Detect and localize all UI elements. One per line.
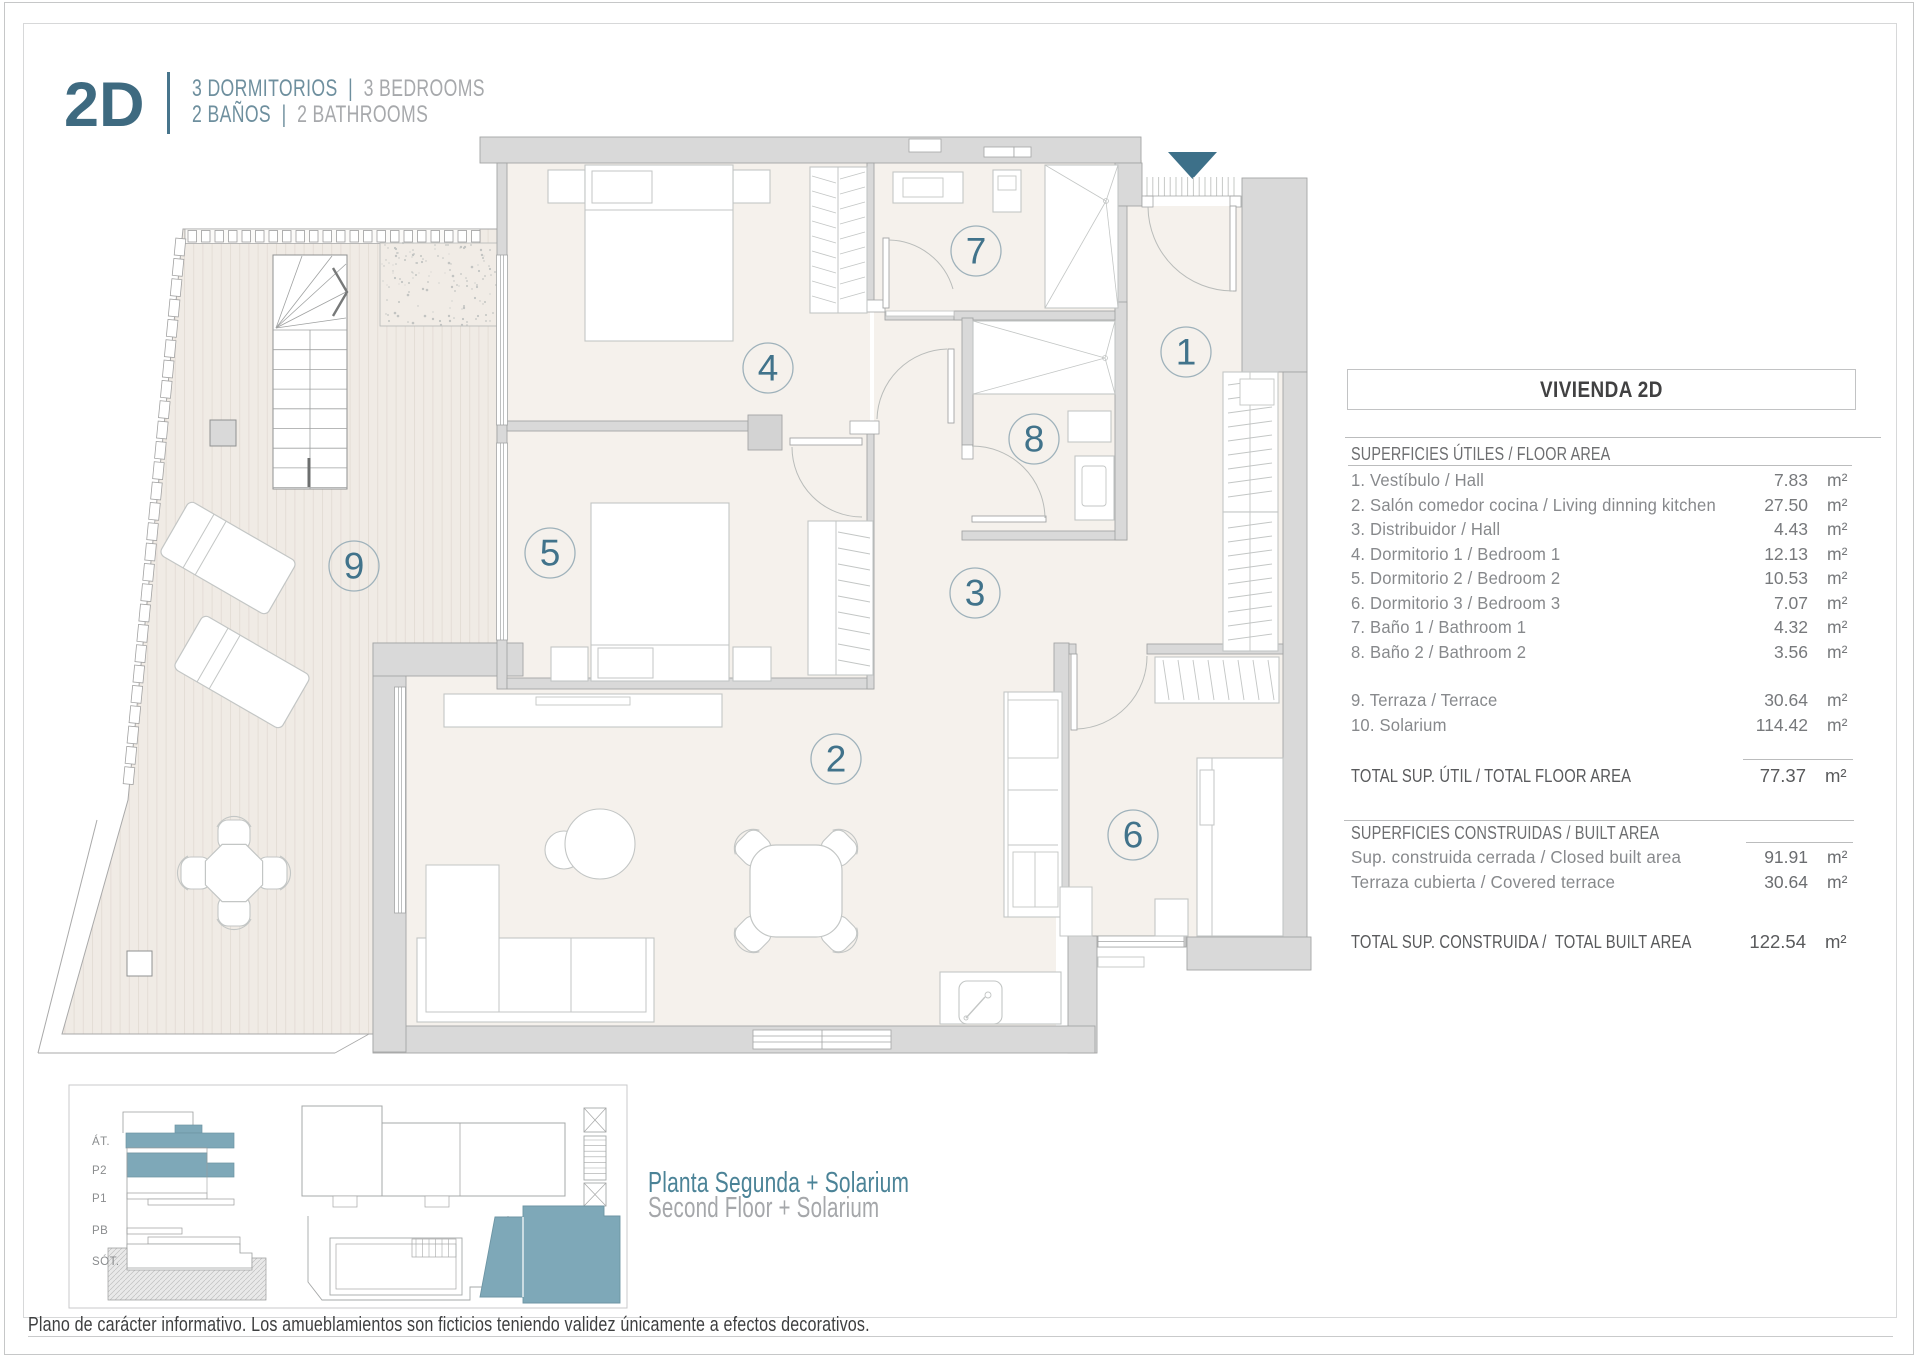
svg-text:3: 3 — [965, 573, 986, 614]
svg-text:SÓT.: SÓT. — [92, 1255, 120, 1268]
svg-text:2: 2 — [826, 739, 847, 780]
svg-text:5: 5 — [540, 533, 561, 574]
svg-text:8: 8 — [1024, 419, 1045, 460]
svg-text:1: 1 — [1176, 332, 1197, 373]
svg-text:PB: PB — [92, 1225, 108, 1237]
svg-text:P2: P2 — [92, 1165, 107, 1177]
svg-text:P1: P1 — [92, 1193, 107, 1205]
svg-text:ÁT.: ÁT. — [92, 1135, 110, 1148]
svg-text:6: 6 — [1123, 815, 1144, 856]
svg-text:4: 4 — [758, 348, 779, 389]
svg-text:9: 9 — [344, 546, 365, 587]
svg-text:7: 7 — [966, 231, 987, 272]
